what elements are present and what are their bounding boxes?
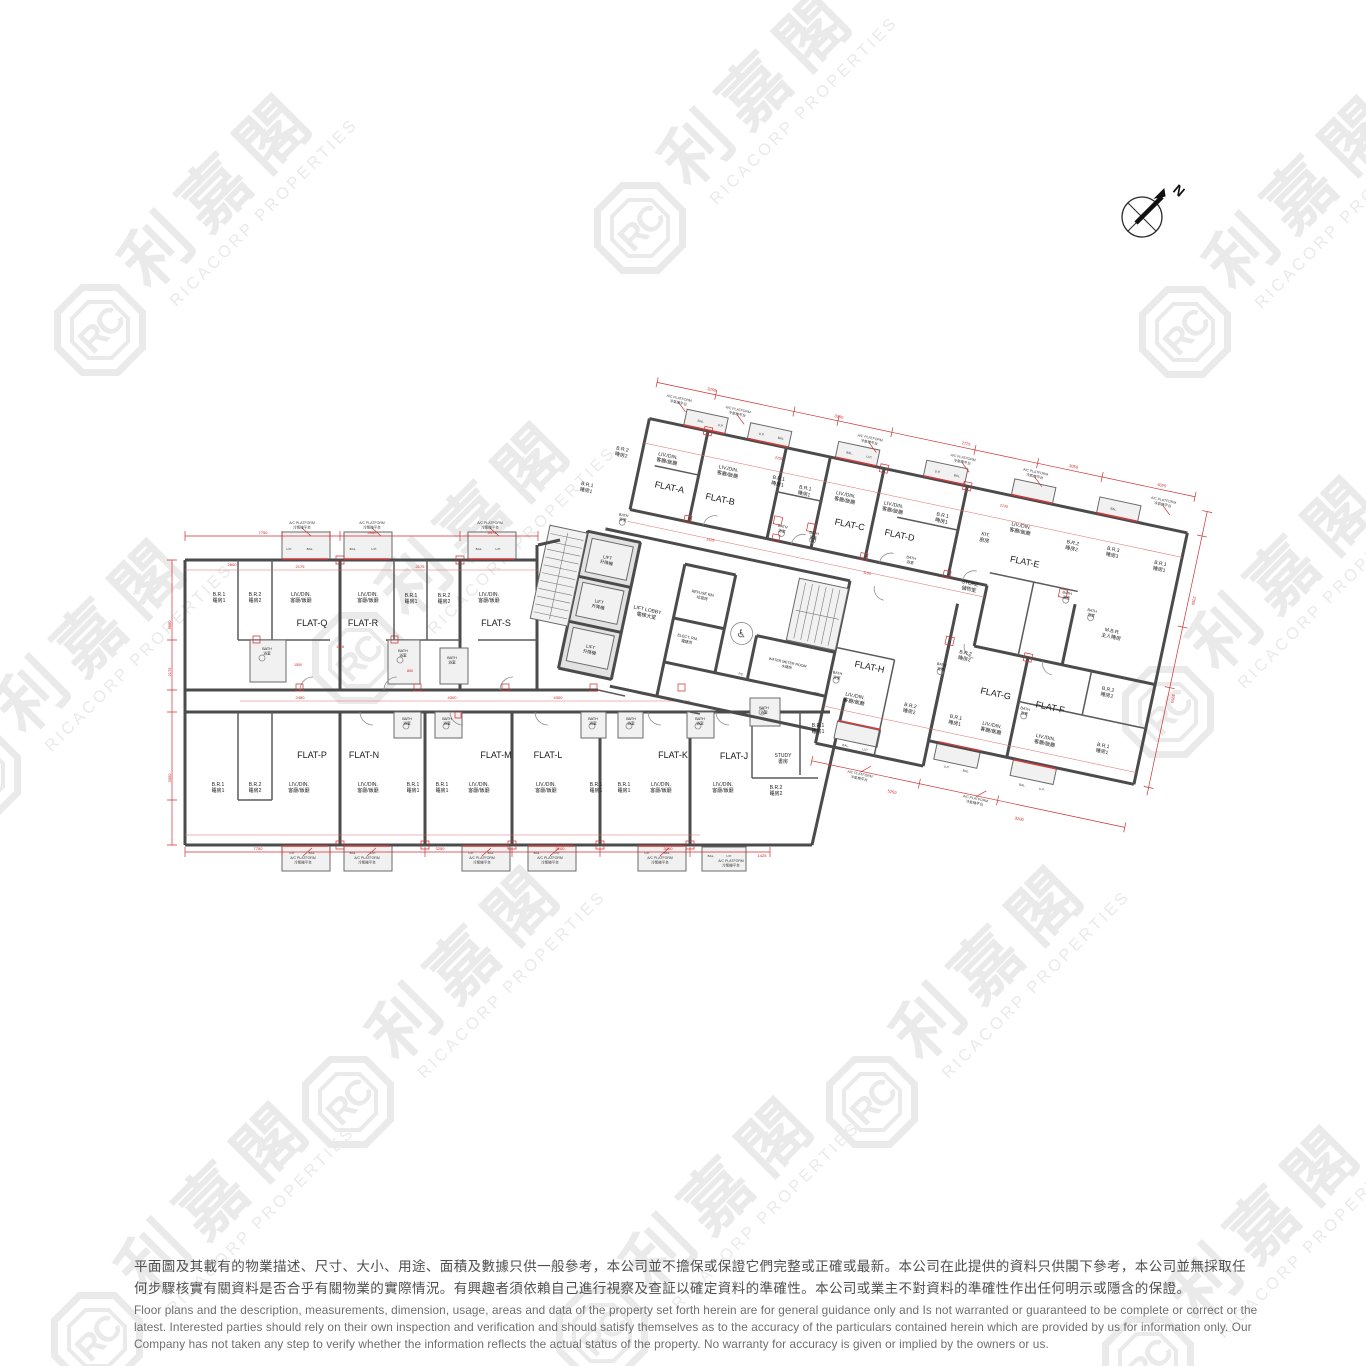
room-label: B.R.2睡房2 [249,782,262,794]
dim-label: 2130 [1000,503,1009,509]
ac-platform-label: A/C PLATFORM冷氣機平台 [856,433,883,447]
room-label: B.R.1睡房1 [934,511,949,525]
disclaimer-zh-line-1: 平面圖及其載有的物業描述、尺寸、大小、用途、面積及數據只供一般參考，本公司並不擔… [134,1255,1246,1275]
up-label: U.P. [286,547,292,551]
room-label: B.R.1睡房1 [590,782,603,794]
bal-label: BAL. [350,547,357,551]
flat-label-k: FLAT-K [658,750,688,760]
up-label: U.P. [289,851,295,855]
room-label: B.R.1睡房1 [212,782,225,794]
flat-label-q: FLAT-Q [297,618,328,628]
dim-label: 800 [407,669,413,673]
dim-label: 2450 [296,695,306,700]
bal-label: BAL. [309,851,316,855]
room-label: B.R.2睡房2 [1100,686,1115,700]
dim-label: 3475 [488,530,498,535]
ac-platform-label: A/C PLATFORM冷氣機平台 [962,794,989,808]
dim-label: 3250 [834,413,845,420]
room-label: LIV./DIN.客廳/飯廳 [650,782,671,794]
room-label: LIV./DIN.客廳/飯廳 [357,592,378,604]
ac-platform-label: A/C PLATFORM冷氣機平台 [1022,467,1049,481]
bath-label: BATH浴室 [905,555,916,566]
bath-label: BATH浴室 [402,717,412,726]
disclaimer-zh-line-2: 何步驟核實有關資料是否合乎有關物業的實際情況。有興趣者須依賴自己進行視察及查証以… [134,1277,1190,1297]
room-label: B.R.1睡房1 [618,782,631,794]
flat-label-d: FLAT-D [884,527,916,543]
bath-label: BATH浴室 [442,717,452,726]
room-label: B.R.2睡房2 [902,702,917,716]
bal-label: BAL. [350,851,357,855]
ac-platform-label: A/C PLATFORM冷氣機平台 [289,521,315,530]
water-meter-room-label: WATER METER ROOM水錶房 [768,657,807,673]
dim-label: 3200 [556,846,566,851]
dim-label: 2175 [416,564,426,569]
left-wing-walls [185,532,845,871]
room-label: B.R.3睡房3 [1105,546,1120,560]
room-label: B.R.1睡房1 [407,782,420,794]
dim-label: 3550 [167,620,172,630]
dim-label: 2350 [1190,596,1197,607]
flat-label-a: FLAT-A [654,479,685,495]
up-label: U.P. [371,547,377,551]
disclaimer-en-line-3: Company has not taken any step to verify… [134,1337,1049,1351]
bal-label: BAL. [664,851,671,855]
flat-label-r: FLAT-R [348,618,379,628]
bal-label: BAL. [488,851,495,855]
flat-label-l: FLAT-L [534,750,563,760]
room-label: LIV./DIN.客廳/飯廳 [843,691,866,707]
ac-platform-label: A/C PLATFORM冷氣機平台 [1150,496,1177,510]
room-label: B.R.2睡房2 [957,649,972,663]
dim-label: 3050 [1069,463,1080,470]
flat-label-c: FLAT-C [834,517,866,533]
flat-label-s: FLAT-S [481,618,511,628]
up-label: U.P. [370,851,376,855]
room-label: B.R.1睡房1 [1152,560,1167,574]
bath-label: BATH浴室 [588,717,598,726]
dim-label: 7750 [254,846,264,851]
dim-label: 4300 [448,695,458,700]
room-label: LIV./DIN.客廳/飯廳 [881,500,904,516]
dim-label: 4300 [554,695,564,700]
flat-label-h: FLAT-H [854,659,886,675]
room-label: B.R.2睡房2 [1065,539,1080,553]
dim-label: 3200 [1014,815,1025,822]
flat-label-n: FLAT-N [349,750,379,760]
room-label: KIT.廚房 [979,531,991,545]
flat-label-g: FLAT-G [980,686,1012,702]
room-label: LIV./DIN.客廳/飯廳 [656,451,679,467]
flat-label-j: FLAT-J [720,751,748,761]
right-wing-dimensions [586,377,1216,836]
bal-label: BAL. [476,547,483,551]
accessible-icon: ♿ [735,628,747,642]
dim-label: 2775 [961,440,972,447]
dim-label: 1150 [863,570,871,576]
room-label: LIV./DIN.客廳/飯廳 [288,782,309,794]
room-label: LIV./DIN.客廳/飯廳 [980,720,1003,736]
ac-platform-label: A/C PLATFORM冷氣機平台 [665,394,692,408]
room-label: LIV./DIN.客廳/飯廳 [468,782,489,794]
bal-label: BAL. [962,768,970,773]
dim-label: 3050 [167,773,172,783]
ac-platform-label: A/C PLATFORM冷氣機平台 [724,405,751,419]
room-label: B.R.1睡房1 [436,782,449,794]
room-label: B.R.1睡房1 [771,475,786,489]
room-label: LIV./DIN.客廳/飯廳 [712,782,733,794]
room-label: LIV./DIN.客廳/飯廳 [716,464,739,480]
room-label: LIV./DIN.客廳/飯廳 [290,592,311,604]
disclaimer-en-line-2: latest. Interested parties should rely o… [134,1320,1252,1334]
flat-label-b: FLAT-B [705,491,736,507]
bath-label: BATH浴室 [447,656,457,665]
north-compass: N [1122,181,1188,237]
room-label: LIV./DIN.客廳/飯廳 [357,782,378,794]
dim-label: 1128 [336,645,344,649]
dim-label: 2800 [228,562,238,567]
up-label: U.P. [468,851,474,855]
bath-label: BATH浴室 [262,647,272,656]
room-label: STORE儲物室 [960,579,980,594]
bal-label: BAL. [534,851,541,855]
up-label: U.P. [554,851,560,855]
elect-room-label: ELECT. RM.電錶房 [676,633,698,646]
room-label: LIV./DIN.客廳/飯廳 [478,592,499,604]
bath-label: BATH浴室 [695,717,705,726]
dim-label: 3250 [436,846,446,851]
room-label: B.R.2睡房2 [770,785,783,797]
room-label: LIV./DIN.客廳/飯廳 [535,782,556,794]
bath-label: BATH浴室 [759,706,769,715]
room-label: B.R.1睡房1 [213,592,226,604]
bal-label: BAL. [708,854,715,858]
dim-label: 3250 [707,386,718,393]
dim-label: 1500 [294,663,302,667]
up-label: U.P. [862,747,868,752]
dim-label: 4025 [1157,482,1168,489]
up-label: U.P. [726,854,732,858]
dim-label: 3200 [664,846,674,851]
room-label: LIV./DIN.客廳/飯廳 [1009,521,1032,537]
bal-label: BAL. [307,547,314,551]
ac-platform-label: A/C PLATFORM冷氣機平台 [949,453,976,467]
dim-label: 2175 [167,667,172,677]
room-label: B.R.2睡房2 [249,592,262,604]
watermark-layer [0,0,1366,1366]
room-label: LIV./DIN.客廳/飯廳 [833,490,856,506]
dim-label: 2175 [296,564,306,569]
floor-plan-canvas: RC 利嘉閣 RICACORP PROPERTIES [0,0,1366,1366]
room-label: B.R.1睡房1 [948,714,963,728]
refuse-room-label: REFUSE RM.垃圾房 [690,589,715,602]
room-label: B.R.1睡房1 [812,723,825,735]
dim-label: 1425 [706,537,715,543]
room-label: STUDY書房 [775,753,793,765]
dim-label: 5960 [368,530,378,535]
ac-platform-label: A/C PLATFORM冷氣機平台 [359,521,385,530]
flat-label-p: FLAT-P [297,750,327,760]
bal-label: BAL. [1019,782,1027,787]
pd-label: P.D. [738,672,744,677]
up-label: U.P. [644,851,650,855]
north-label: N [1170,181,1188,200]
bath-label: BATH浴室 [398,649,408,658]
room-label: LIV./DIN.客廳/飯廳 [1033,733,1056,749]
flat-label-m: FLAT-M [480,750,511,760]
disclaimer-en-line-1: Floor plans and the description, measure… [134,1303,1257,1317]
up-label: U.P. [1039,787,1045,792]
room-label: M.B.R.主人睡房 [1101,626,1123,642]
bal-label: BAL. [842,743,850,748]
up-label: U.P. [495,547,501,551]
room-label: B.R.1睡房1 [1095,742,1110,756]
up-label: U.P. [943,764,949,769]
room-label: B.R.2睡房2 [438,593,451,605]
dim-label: 2250 [775,456,784,462]
dim-label: 5250 [887,788,898,795]
right-wing-labels: FLAT-AFLAT-BFLAT-CFLAT-DFLAT-EFLAT-HFLAT… [531,364,1219,847]
dim-label: 7750 [259,530,269,535]
floor-plan-page: RC 利嘉閣 RICACORP PROPERTIES [0,0,1366,1366]
flat-label-e: FLAT-E [1009,554,1040,570]
bath-label: BATH浴室 [626,717,636,726]
dim-label: 1425 [758,853,768,858]
lift-lobby-label: LIFT LOBBY電梯大堂 [632,605,663,623]
ac-platform-label: A/C PLATFORM冷氣機平台 [846,770,873,784]
room-label: B.R.1睡房1 [405,593,418,605]
flat-label-f: FLAT-F [1035,699,1066,715]
